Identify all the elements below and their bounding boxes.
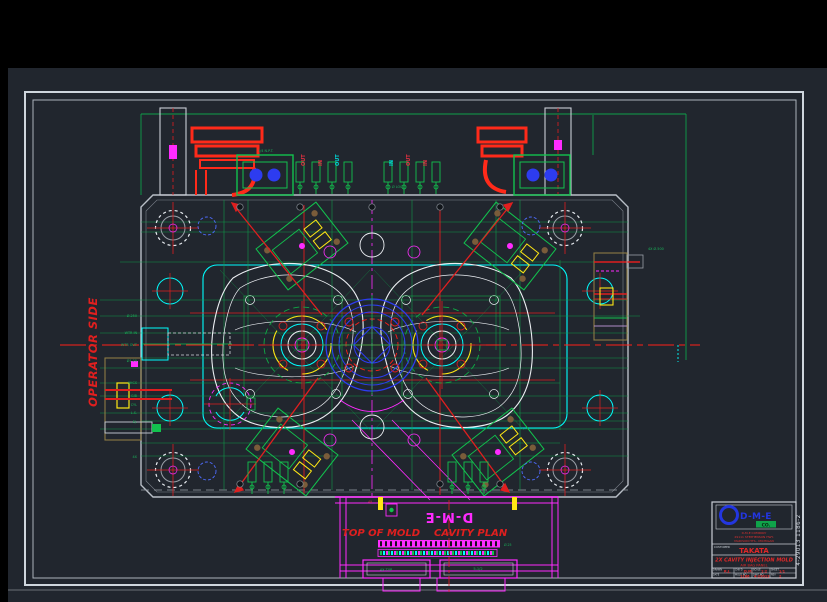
customer-label: CUSTOMER (714, 545, 730, 549)
field-value: 1186 (740, 574, 750, 578)
water-manifold-right[interactable] (478, 128, 526, 192)
strip-label: Ø.25 (504, 542, 512, 547)
port-label: IN (318, 160, 324, 166)
leader-label: EJ. (133, 420, 137, 424)
mold-drawing: OUT IN OUT IN OUT IN (0, 0, 827, 602)
leader-label: CYL (131, 403, 137, 407)
logo-badge: CO. (762, 523, 771, 529)
cavity-plan-label: CAVITY PLAN (434, 528, 508, 539)
foot-right-label: 5-1/2 (473, 567, 482, 571)
sprue-center[interactable] (322, 295, 422, 412)
dme-brand-label: D-M-E (425, 509, 474, 524)
port-label: IN (389, 160, 395, 166)
leader-label: Ø1.25 (127, 358, 137, 363)
leader-pins (147, 202, 618, 496)
rotary-core[interactable] (204, 378, 256, 430)
field-label: REV (771, 574, 776, 577)
port-label: IN (423, 160, 429, 166)
field-value: R.J. (724, 570, 731, 574)
leader-label: 4X (133, 455, 138, 459)
bottom-fittings-row (248, 462, 488, 494)
leader-label: Ø.250 (127, 313, 137, 318)
field-label: CHK'D (735, 569, 743, 572)
top-label: 1/4 N.P.T. (258, 149, 274, 153)
quick-coupler-right[interactable] (514, 155, 570, 195)
foot-left-label: 4X TYP (380, 568, 393, 572)
operator-side-label: OPERATOR SIDE (86, 297, 100, 407)
address-line: MADISON HTS., MICHIGAN (734, 539, 773, 543)
sprue-column-left[interactable] (160, 108, 186, 195)
annotations: OPERATOR SIDE TOP OF MOLD CAVITY PLAN D-… (86, 149, 802, 572)
centerlines (60, 200, 700, 497)
sprue-column-right[interactable] (545, 108, 571, 195)
leader-label: SHCS (128, 381, 137, 385)
leader-label: WTR OUT (121, 343, 138, 347)
field-label: DRAWN (713, 569, 722, 572)
port-label: OUT (335, 154, 341, 166)
port-label: OUT (301, 154, 307, 166)
mold-plate[interactable] (141, 195, 628, 497)
logo-text: D-M-E (740, 512, 772, 522)
port-label: OUT (406, 154, 412, 166)
top-of-mold-label: TOP OF MOLD (342, 528, 420, 539)
leader-label: GIB (131, 394, 138, 398)
company-logo: D-M-E CO. (721, 507, 777, 529)
leader-label: WTR IN (125, 331, 138, 335)
mold-subtitle: AIR BAG PANEL (740, 564, 767, 568)
top-label: Ø LOC. (392, 184, 404, 189)
right-label: 4X Ø.500 (648, 246, 664, 251)
field-value: 4-29013 (754, 574, 770, 578)
title-block: D-M-E CO. D-M-E COMPANY 29111 STEPHENSON… (712, 502, 796, 578)
field-label: SCALE (753, 569, 761, 572)
field-value: D.M. (744, 570, 753, 574)
field-label: DATE (713, 574, 720, 577)
cylinder-unit-right[interactable] (594, 253, 643, 340)
leader-label: L.S. (131, 411, 137, 415)
hydraulic-unit-left[interactable] (105, 358, 172, 440)
drawing-number-vertical: 4-29013 1186-2 (796, 514, 802, 565)
field-value: 1:2 (761, 570, 768, 574)
field-value: 1/1 (779, 570, 786, 574)
port-labels: OUT IN OUT IN OUT IN (301, 154, 429, 166)
customer-name: TAKATA (739, 547, 769, 555)
cad-viewport: { "drawing": { "operator_side": "OPERATO… (0, 0, 827, 602)
